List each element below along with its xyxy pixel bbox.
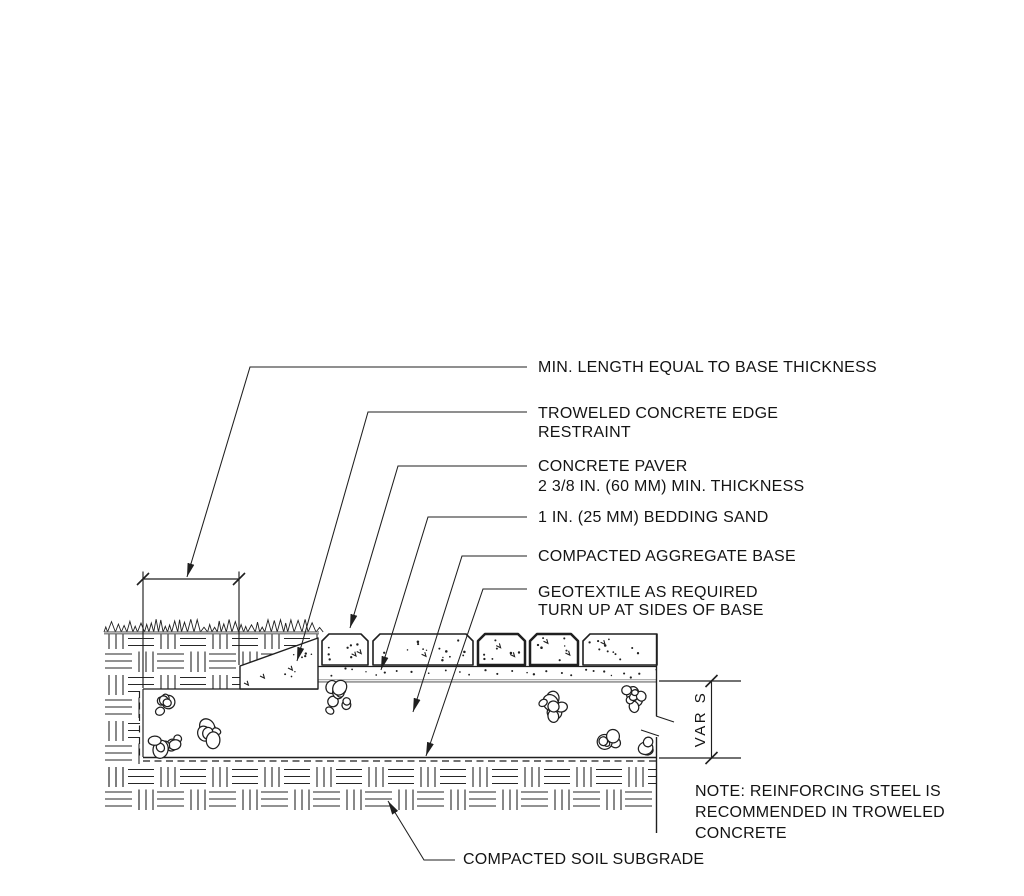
leader-edge-restraint	[297, 412, 527, 661]
callout-bedding-sand: 1 IN. (25 MM) BEDDING SAND	[538, 509, 769, 526]
leader-min-length	[187, 367, 527, 577]
bedding-sand-layer	[318, 667, 657, 680]
varies-dimension-label: VAR S	[692, 691, 709, 747]
callout-edge-restraint-2: RESTRAINT	[538, 424, 631, 441]
paver-detail-drawing: VAR S MIN. LENGTH EQUAL TO BASE THICKNES…	[0, 0, 1024, 896]
leader-concrete-paver	[350, 466, 527, 628]
callout-concrete-paver-2: 2 3/8 IN. (60 MM) MIN. THICKNESS	[538, 478, 804, 495]
callout-concrete-paver-1: CONCRETE PAVER	[538, 458, 688, 475]
note-line-1: NOTE: REINFORCING STEEL IS	[695, 783, 941, 800]
grass-tufts	[104, 619, 323, 634]
callout-aggregate-base: COMPACTED AGGREGATE BASE	[538, 548, 796, 565]
note-line-3: CONCRETE	[695, 825, 787, 842]
aggregate-base-layer	[143, 678, 656, 760]
callout-min-length: MIN. LENGTH EQUAL TO BASE THICKNESS	[538, 359, 877, 376]
callout-edge-restraint-1: TROWELED CONCRETE EDGE	[538, 405, 778, 422]
callout-geotextile-2: TURN UP AT SIDES OF BASE	[538, 602, 764, 619]
reinforcing-note: NOTE: REINFORCING STEEL IS RECOMMENDED I…	[695, 783, 945, 842]
note-line-2: RECOMMENDED IN TROWELED	[695, 804, 945, 821]
detail-section-svg: VAR S MIN. LENGTH EQUAL TO BASE THICKNES…	[0, 0, 1024, 896]
callout-soil-subgrade: COMPACTED SOIL SUBGRADE	[463, 851, 704, 868]
dimension-varies: VAR S	[659, 675, 741, 764]
subgrade-hatch	[104, 766, 656, 812]
paver-row	[322, 634, 657, 665]
callout-geotextile-1: GEOTEXTILE AS REQUIRED	[538, 584, 758, 601]
